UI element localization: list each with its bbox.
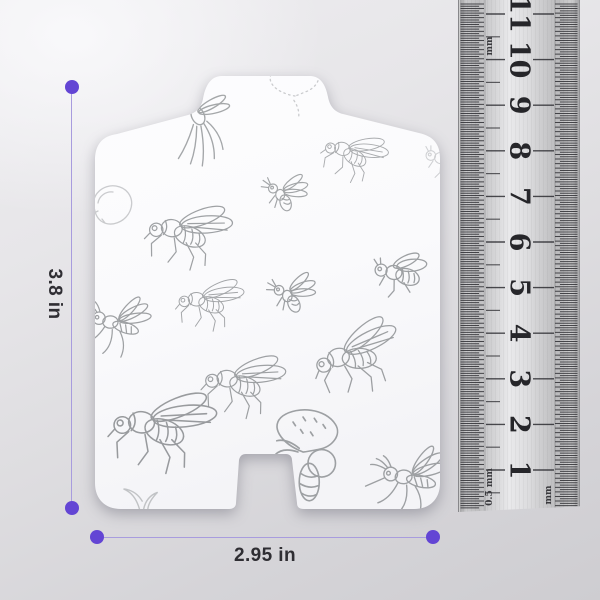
ruler-markings: 1234567891011mm0.5 mmmm [459, 0, 579, 512]
ruler-number: 7 [504, 187, 535, 206]
width-dimension-left-dot [90, 530, 104, 544]
height-dimension-top-dot [65, 80, 79, 94]
ruler-mm-label-top-left: mm [485, 36, 495, 56]
ruler-number: 9 [504, 96, 535, 115]
height-dimension-line [71, 93, 73, 502]
ruler-number: 11 [504, 0, 535, 33]
ruler-number: 4 [504, 324, 535, 343]
width-dimension-right-dot [426, 530, 440, 544]
ruler-number: 10 [504, 41, 535, 79]
width-dimension-label: 2.95 in [234, 545, 296, 567]
width-dimension-line [103, 537, 427, 539]
ruler-mm-label-bottom-left: 0.5 mm [485, 468, 495, 506]
height-dimension-label: 3.8 in [43, 269, 65, 320]
height-dimension-bottom-dot [65, 501, 79, 515]
ruler-number: 5 [504, 278, 535, 297]
ruler-number: 1 [504, 461, 535, 480]
product-dimension-image: 3.8 in 2.95 in 1234567891011mm0.5 mmmm [0, 0, 600, 600]
ruler-number: 8 [504, 141, 535, 160]
ruler-number: 2 [504, 415, 535, 434]
ruler-number: 3 [504, 369, 535, 388]
steel-ruler: 1234567891011mm0.5 mmmm [458, 0, 580, 512]
ruler-mm-label-bottom-right: mm [544, 485, 554, 505]
ruler-number: 6 [504, 233, 535, 252]
